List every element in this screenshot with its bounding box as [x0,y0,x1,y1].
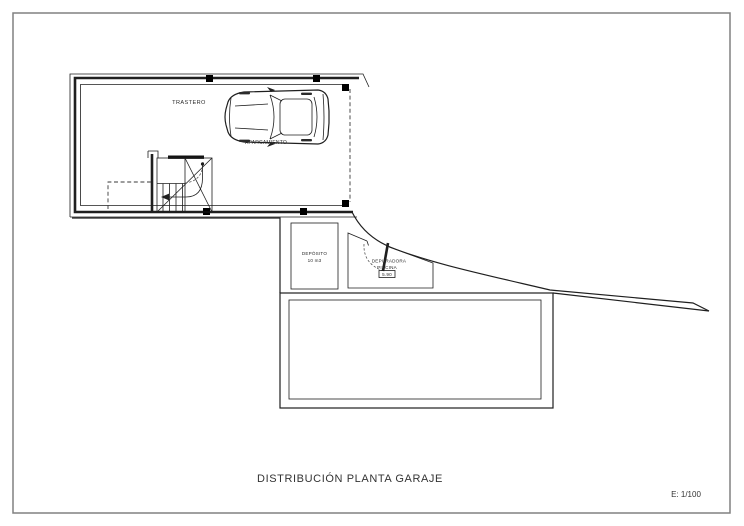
pool-basin [289,300,541,399]
lower-terrace [72,218,553,408]
column-marker [300,208,307,215]
site-boundary-left [72,218,280,293]
trastero-label: TRASTERO [172,100,206,106]
column-marker [206,75,213,82]
garage-wall-inner [81,85,348,206]
car-top-view [225,87,329,147]
column-marker [342,84,349,91]
garage-room: TRASTERO [70,74,369,217]
depuradora-room: DEPURADORA PISCINA 5.90 [348,233,433,288]
door-jamb-tick [367,241,369,246]
car-wheel [301,93,312,95]
scale-label: E: 1/100 [671,490,701,499]
floor-plan-canvas: TRASTERO APARCAMIENTO [0,0,744,526]
level-tag: 5.90 [379,271,395,278]
deposito-outline [291,223,338,289]
depuradora-label-line1: DEPURADORA [372,259,407,264]
column-marker [313,75,320,82]
projection-dashed-line [108,182,151,212]
car-hood-creases [235,104,268,130]
depuradora-label-line2: PISCINA [377,265,398,270]
staircase [148,151,212,212]
stair-arrow-head [161,194,169,201]
deposito-room: DEPÓSITO 10 m3 [291,223,338,289]
plan-title: DISTRIBUCIÓN PLANTA GARAJE [257,472,443,485]
pool-outer-wall [280,293,553,408]
stair-treads [163,158,185,212]
car-front-bumper [230,98,232,136]
car-rear-window [314,97,317,137]
stair-turn-arc [185,162,203,183]
car-wheel [239,92,250,94]
drawing-sheet: TRASTERO APARCAMIENTO [0,0,744,526]
garage-wall-main [75,78,359,212]
car-rear-bumper [323,94,324,140]
column-marker [203,208,210,215]
column-marker [342,200,349,207]
deposito-label-line1: DEPÓSITO [302,250,327,256]
car-wheel [301,139,312,141]
garage-wall-outer [70,74,369,217]
stair-break-lines [157,158,212,212]
car-roof [280,99,312,135]
deposito-label-line2: 10 m3 [308,258,322,263]
aparcamiento-label: APARCAMIENTO [245,140,287,146]
level-tag-value: 5.90 [382,272,392,277]
